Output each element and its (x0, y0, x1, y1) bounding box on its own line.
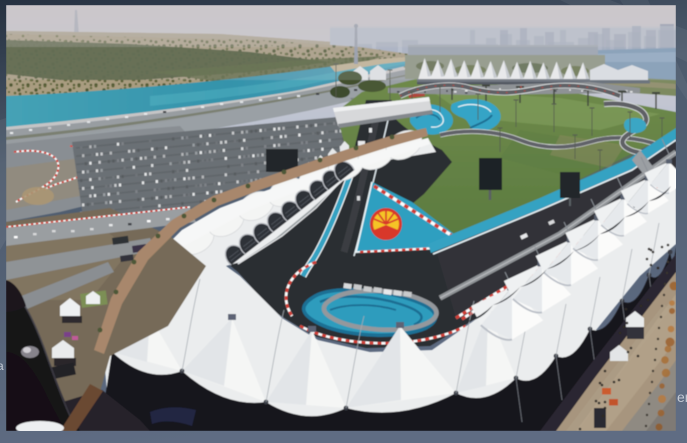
svg-text:a: a (0, 359, 4, 373)
svg-text:er: er (677, 389, 687, 405)
